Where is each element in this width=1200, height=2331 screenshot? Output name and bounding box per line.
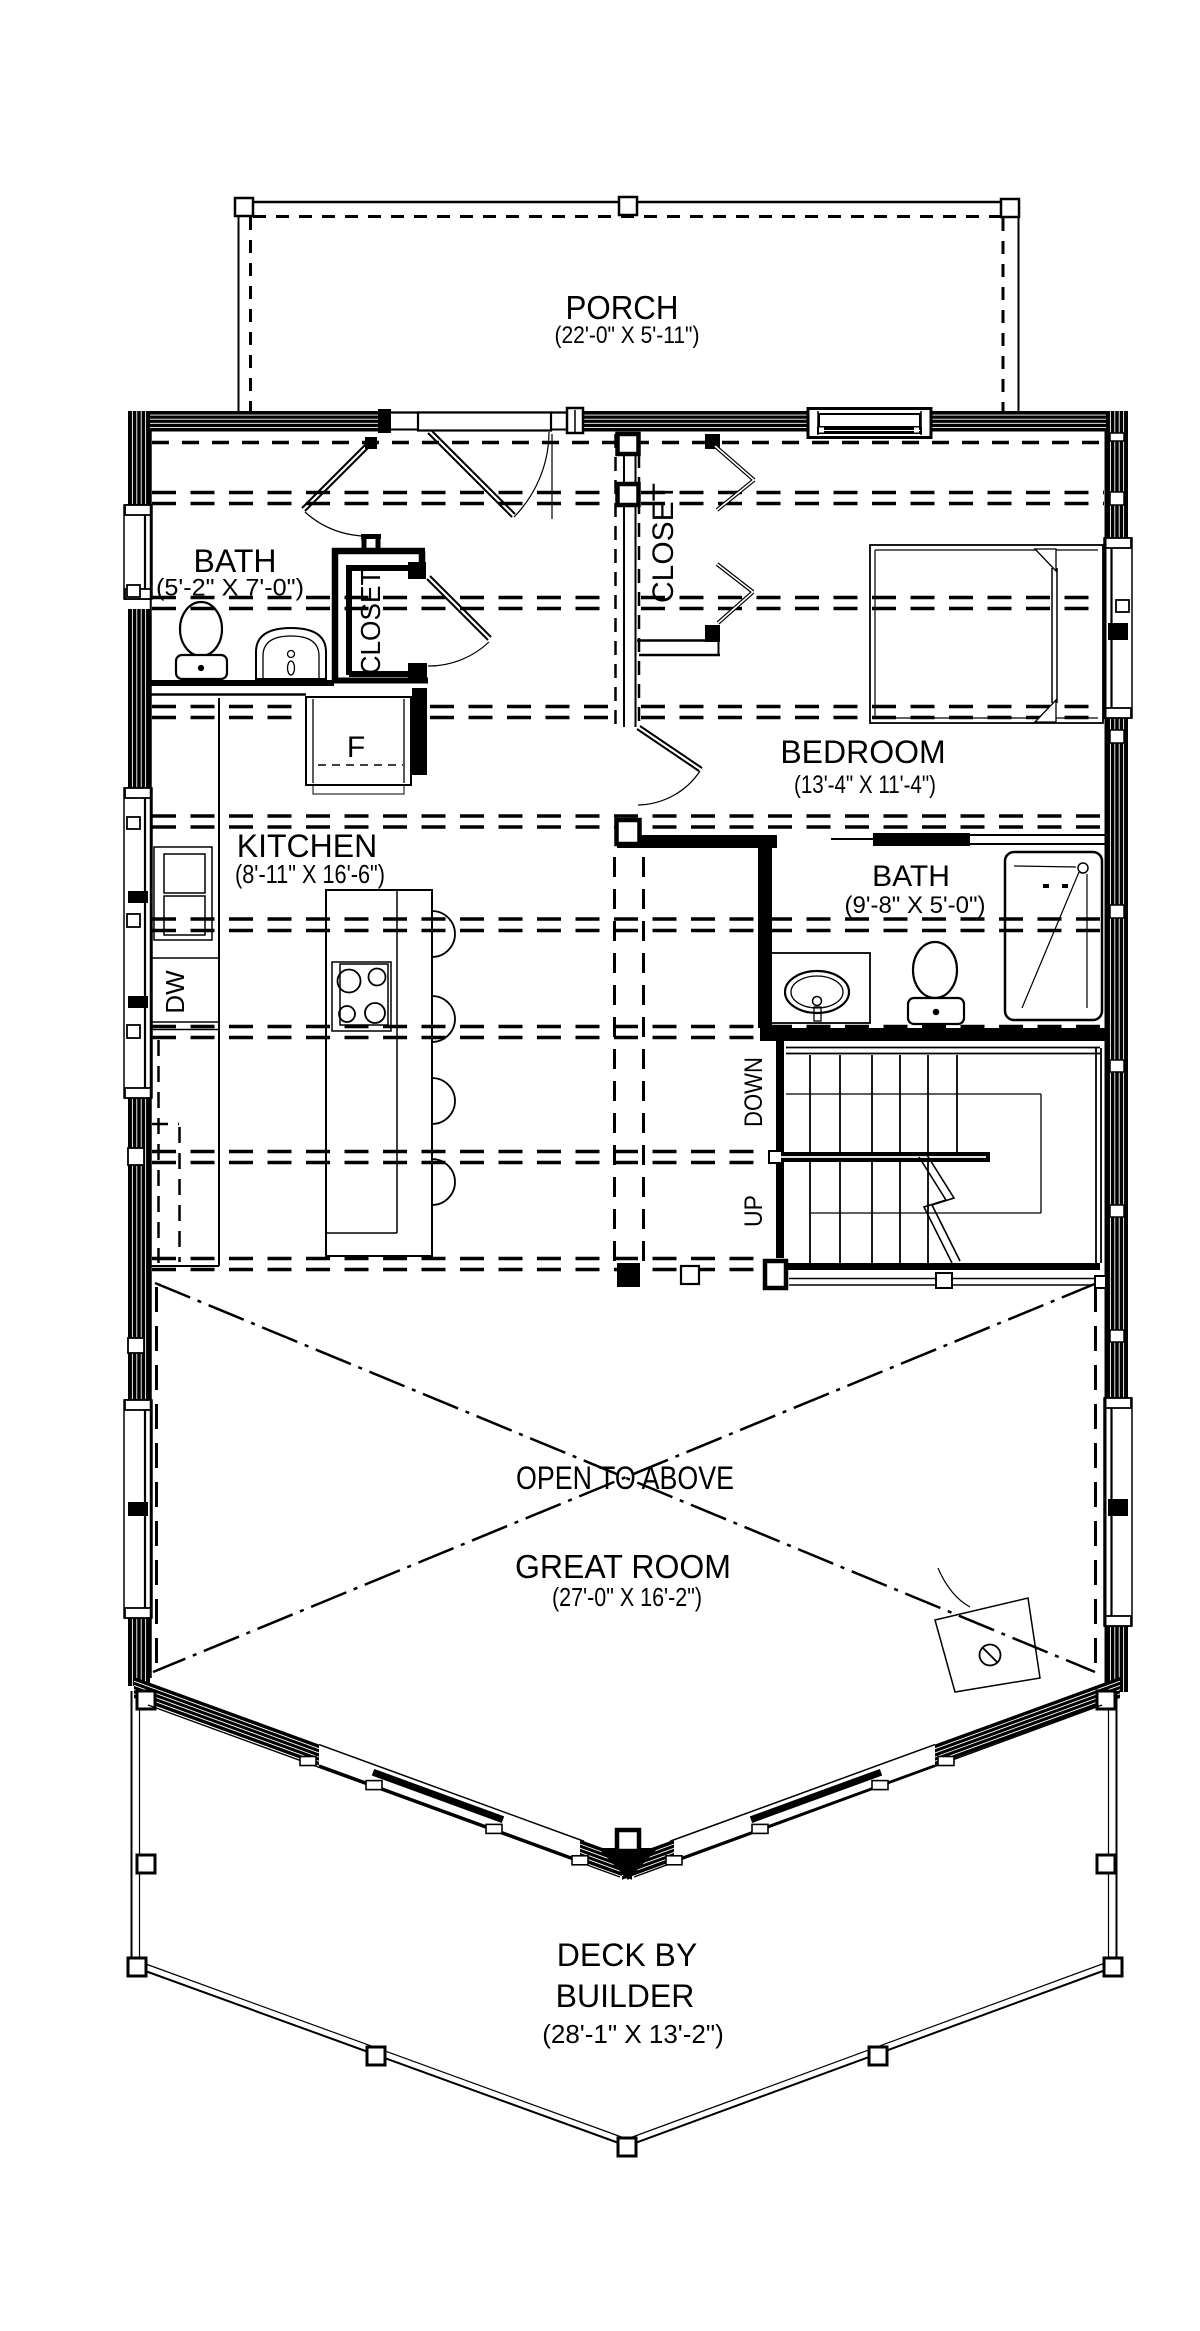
svg-text:BUILDER: BUILDER [556, 1978, 695, 2014]
svg-text:DOWN: DOWN [740, 1057, 768, 1127]
svg-text:DW: DW [160, 970, 190, 1014]
svg-text:(13'-4" X 11'-4"): (13'-4" X 11'-4") [794, 771, 936, 799]
svg-text:(5'-2" X 7'-0"): (5'-2" X 7'-0") [156, 575, 304, 602]
svg-text:DECK BY: DECK BY [557, 1937, 697, 1973]
svg-text:(28'-1" X 13'-2"): (28'-1" X 13'-2") [542, 2019, 724, 2049]
svg-text:BATH: BATH [872, 860, 950, 893]
svg-text:F: F [347, 731, 365, 764]
svg-text:OPEN TO ABOVE: OPEN TO ABOVE [516, 1460, 734, 1496]
svg-text:CLOSET: CLOSET [647, 483, 680, 603]
svg-text:CLOSET: CLOSET [355, 570, 386, 675]
svg-text:(27'-0" X 16'-2"): (27'-0" X 16'-2") [552, 1582, 702, 1612]
svg-text:GREAT ROOM: GREAT ROOM [515, 1548, 731, 1585]
svg-text:UP: UP [740, 1195, 768, 1227]
svg-text:(22'-0" X 5'-11"): (22'-0" X 5'-11") [555, 322, 700, 349]
svg-text:(8'-11" X 16'-6"): (8'-11" X 16'-6") [235, 859, 385, 889]
svg-text:BEDROOM: BEDROOM [780, 734, 945, 770]
svg-text:(9'-8" X 5'-0"): (9'-8" X 5'-0") [845, 892, 986, 919]
svg-text:PORCH: PORCH [566, 289, 679, 326]
